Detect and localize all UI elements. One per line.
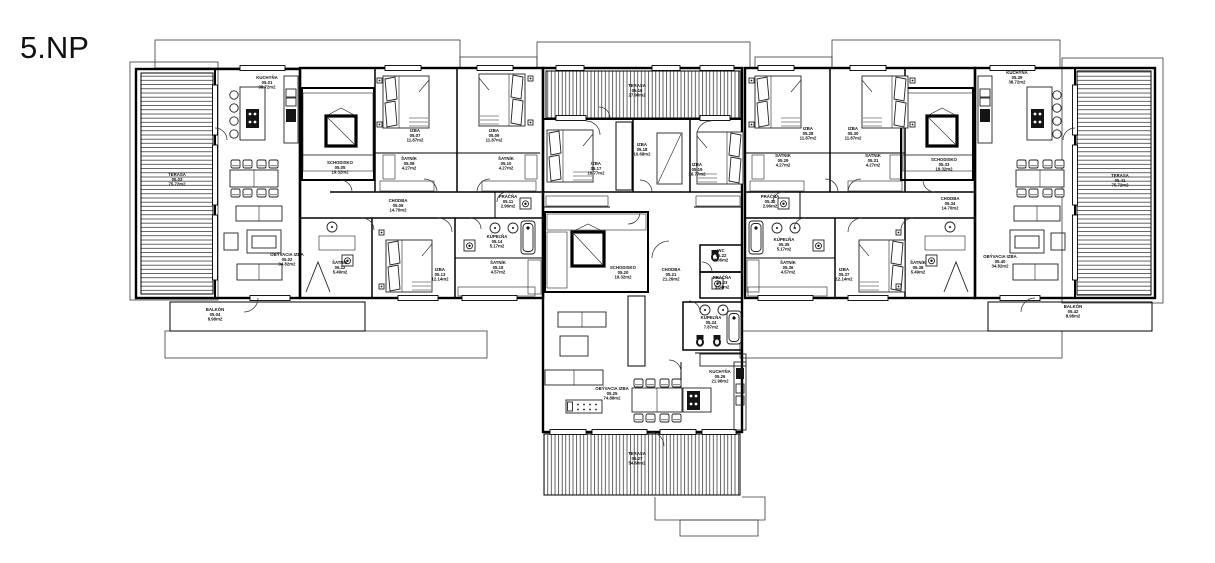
room-label-05.11: PRÁČŇA05.112.96m2 (499, 194, 517, 209)
room-label-05.08: ŠATNÍK05.084.27m2 (401, 156, 418, 171)
floor-plan-page: 5.NP (0, 0, 1215, 563)
bed (755, 76, 801, 128)
room-label-05.25: OBÝVACIA IZBA05.2574.88m2 (595, 386, 628, 401)
floor-plan-drawing: 5.NP (0, 0, 1215, 563)
room-label-05.32: PRÁČŇA05.322.96m2 (761, 194, 779, 209)
room-label-05.07: IZBA05.0711.87m2 (407, 128, 424, 143)
room-label-05.05: SCHODISKO05.0519.32m2 (327, 160, 354, 175)
room-label-05.36: ŠATNÍK05.364.57m2 (780, 260, 797, 275)
room-label-05.42: BALKÓN05.428.98m2 (1064, 304, 1082, 319)
bed (386, 240, 432, 292)
room-label-05.33: SCHODISKO05.3319.32m2 (931, 157, 958, 172)
floor-title: 5.NP (20, 30, 89, 65)
room-label-05.29: ŠATNÍK05.294.27m2 (775, 153, 792, 168)
bed (547, 130, 593, 182)
room-label-05.17: IZBA05.1716.77m2 (588, 161, 606, 176)
room-label-05.20: SCHODISKO05.2019.32m2 (610, 265, 637, 280)
room-label-05.18: IZBA05.1810.68m2 (634, 142, 652, 157)
room-label-05.28: IZBA05.2811.87m2 (800, 126, 817, 141)
room-label-05.24: KÚPEĽŇA05.247.87m2 (701, 315, 722, 330)
room-label-05.09: IZBA05.0911.87m2 (486, 128, 503, 143)
bed (862, 76, 908, 128)
room-label-05.35: KÚPEĽŇA05.355.17m2 (774, 237, 795, 252)
room-label-05.40: OBÝVACIA IZBA05.4034.82m2 (983, 254, 1016, 269)
room-label-05.13: IZBA05.1312.14m2 (432, 267, 450, 282)
room-label-05.12: ŠATNÍK05.125.49m2 (332, 260, 349, 275)
exterior-walls (136, 68, 1155, 432)
room-label-05.31: ŠATNÍK05.314.27m2 (865, 153, 882, 168)
room-label-05.01: KUCHYŇA05.0138.72m2 (256, 75, 278, 90)
room-label-05.30: IZBA05.3011.87m2 (845, 126, 862, 141)
room-label-05.15: ŠATNÍK05.154.57m2 (490, 260, 507, 275)
room-label-05.14: KÚPEĽŇA05.145.17m2 (487, 234, 508, 249)
room-label-05.26: KUCHYŇA05.2621.96m2 (709, 369, 731, 384)
room-label-05.21: CHODBA05.2121.26m2 (662, 267, 681, 282)
bed (383, 76, 429, 128)
room-label-05.06: CHODBA05.0614.70m2 (389, 198, 408, 213)
room-label-05.37: IZBA05.3712.14m2 (836, 267, 854, 282)
room-label-05.10: ŠATNÍK05.104.27m2 (498, 156, 515, 171)
bed (479, 74, 525, 126)
room-label-05.38: ŠATNÍK05.385.49m2 (910, 260, 927, 275)
room-label-05.34: CHODBA05.3414.70m2 (941, 196, 960, 211)
balcony-west (170, 302, 365, 331)
room-label-05.04: BALKÓN05.048.98m2 (206, 307, 224, 322)
room-label-05.39: KUCHYŇA05.3938.72m2 (1006, 70, 1028, 85)
